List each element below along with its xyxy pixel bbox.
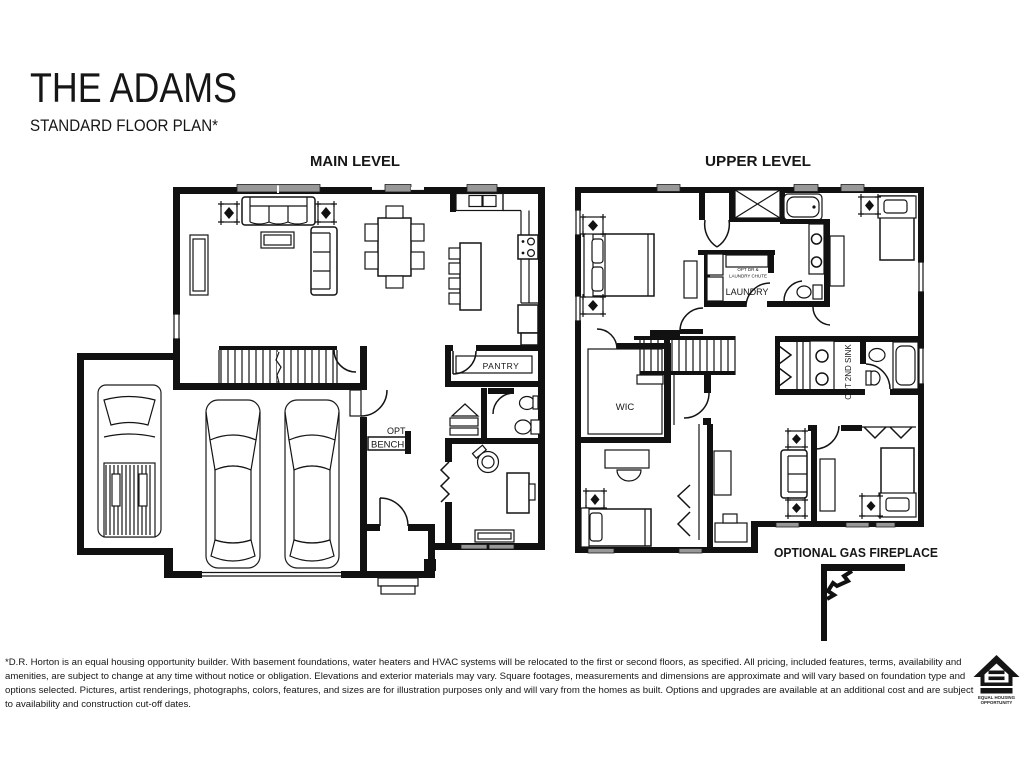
svg-text:to availability and constructi: to availability and construction cut-off… xyxy=(5,699,191,710)
svg-text:MAIN LEVEL: MAIN LEVEL xyxy=(310,153,400,170)
svg-text:STANDARD FLOOR PLAN*: STANDARD FLOOR PLAN* xyxy=(30,116,218,135)
svg-text:THE ADAMS: THE ADAMS xyxy=(30,64,237,111)
svg-text:UPPER LEVEL: UPPER LEVEL xyxy=(705,153,811,170)
svg-text:LAUNDRY CHUTE: LAUNDRY CHUTE xyxy=(729,274,767,279)
svg-text:OPPORTUNITY: OPPORTUNITY xyxy=(981,700,1013,705)
svg-text:options selected. Pictures, ar: options selected. Pictures, artist rende… xyxy=(5,685,974,696)
svg-text:OPTIONAL GAS FIREPLACE: OPTIONAL GAS FIREPLACE xyxy=(774,545,938,560)
svg-text:PANTRY: PANTRY xyxy=(483,361,520,371)
svg-text:LAUNDRY: LAUNDRY xyxy=(726,287,769,297)
svg-text:amenities, are subject to chan: amenities, are subject to change at any … xyxy=(5,671,965,682)
svg-text:BENCH: BENCH xyxy=(371,440,404,451)
svg-text:OPT: OPT xyxy=(387,426,406,436)
svg-text:OPT DR &: OPT DR & xyxy=(737,267,758,272)
svg-text:*D.R. Horton is an equal housi: *D.R. Horton is an equal housing opportu… xyxy=(5,657,962,668)
svg-text:WIC: WIC xyxy=(616,402,635,413)
